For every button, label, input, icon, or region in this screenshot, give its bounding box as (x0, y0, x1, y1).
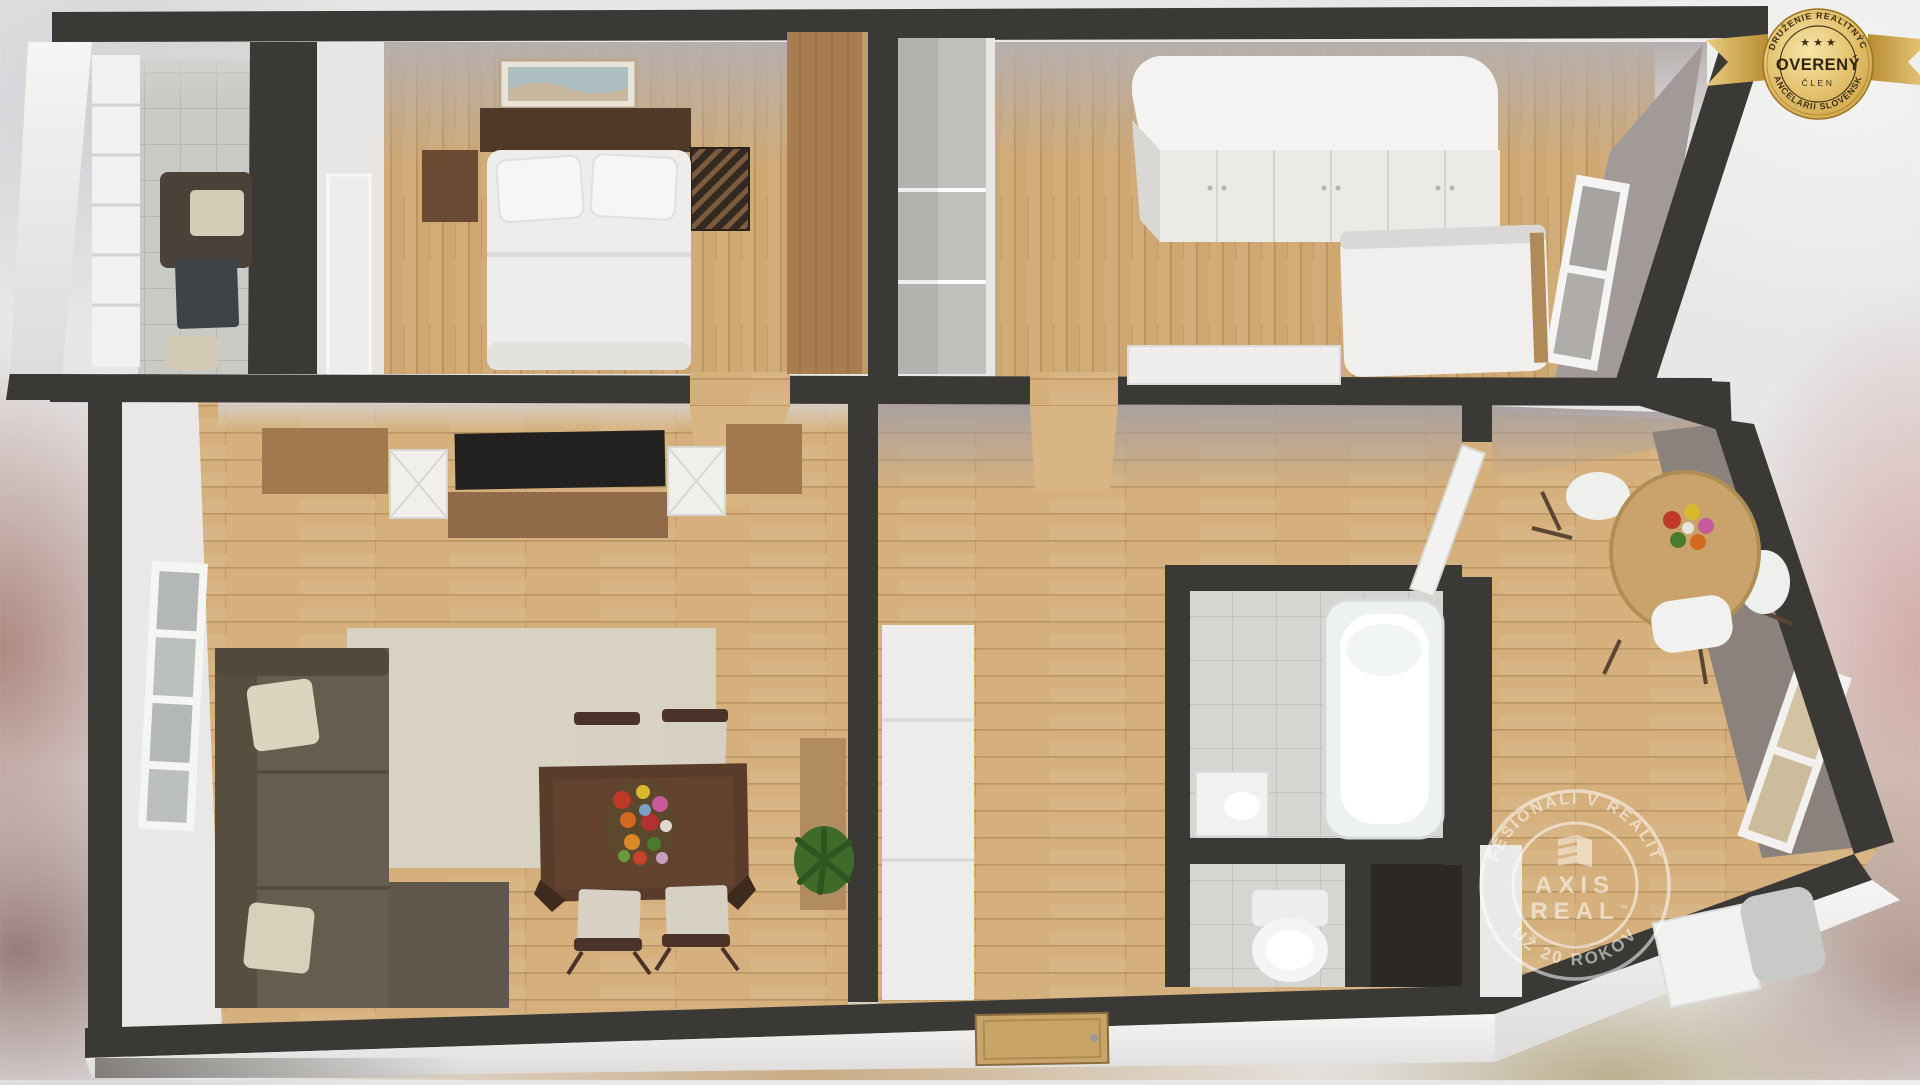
floor-plan-render: AXIS REAL ™ PROFESIONÁLI V REALITÁCH UŽ … (0, 0, 1920, 1080)
low-shelf (1128, 346, 1340, 384)
bathtub-head (1346, 624, 1422, 676)
toilet-seat (1266, 930, 1314, 970)
doorway-hallway (1030, 372, 1118, 406)
wall-stub-left (6, 372, 62, 400)
wall-kitchen-bedroom1 (248, 42, 317, 374)
kitchen-cabinets (92, 55, 140, 367)
nightstand (422, 150, 478, 222)
bedside-shelf (691, 148, 749, 230)
kitchen-stool (166, 336, 218, 370)
pillow-left (496, 155, 584, 223)
sofa-chaise (389, 882, 509, 1008)
chair (574, 712, 640, 773)
storage-nook-floor (1369, 862, 1462, 987)
kitchen-armchair-cushion (190, 190, 244, 236)
watermark-brand-real: REAL (1530, 898, 1619, 925)
sideboard-center (448, 492, 668, 538)
kitchen-table (175, 257, 239, 329)
wall-bathroom-right (1443, 565, 1467, 865)
potted-plant (794, 826, 854, 894)
sofa-pillow-top (246, 678, 321, 753)
sofa-arm-top (215, 648, 389, 676)
wardrobe-wood (787, 32, 868, 374)
exterior-left-top (10, 42, 92, 374)
toilet-room (1252, 890, 1328, 982)
gray-cabinet-edge (986, 38, 995, 374)
floor-plan-svg: AXIS REAL ™ PROFESIONÁLI V REALITÁCH UŽ … (0, 0, 1920, 1080)
watermark-trademark: ™ (1619, 903, 1628, 913)
badge-ribbon-left (1706, 34, 1768, 86)
chair (662, 709, 728, 769)
sideboard-right (726, 424, 802, 494)
badge-title: OVERENÝ (1776, 55, 1860, 74)
sideboard-left (262, 428, 388, 494)
sink (1224, 792, 1260, 820)
hallway-top-wall-face (878, 404, 1462, 492)
bed-headboard (480, 108, 691, 152)
wall-top (52, 6, 1768, 42)
doorway-bedroom1-living (690, 372, 790, 406)
flower-centerpiece (604, 780, 676, 868)
wall-bathroom-left (1165, 565, 1190, 987)
wall-living-left (88, 398, 122, 1048)
single-bed (1340, 224, 1551, 377)
wardrobe-edge (862, 32, 868, 374)
hall-cabinet (882, 625, 974, 1000)
sofa-pillow-bottom (243, 902, 316, 975)
gray-cabinet-shade (898, 38, 938, 374)
wall-bedroom1-closet (868, 38, 898, 376)
wall-bathroom-toilet (1165, 838, 1443, 864)
badge-subtitle: ČLEN (1802, 78, 1835, 88)
pillow-right (590, 154, 677, 220)
bottom-shadow (95, 1058, 465, 1078)
axis-real-building-icon (1558, 835, 1592, 867)
bedroom1-window (328, 175, 370, 375)
bed-foot (487, 342, 691, 370)
badge-stars: ★ ★ ★ (1800, 37, 1836, 49)
wall-toilet-nook (1345, 862, 1371, 987)
badge-ribbon-right (1868, 34, 1920, 86)
entrance-door (976, 1013, 1109, 1065)
tv-panel (455, 430, 666, 490)
watermark-brand-axis: AXIS (1535, 872, 1615, 899)
wall-picture (500, 60, 636, 108)
doorway-threshold-hallway (1030, 406, 1118, 490)
duvet-fold (487, 252, 691, 257)
wall-living-hallway (848, 398, 878, 1002)
entry-closet (898, 38, 995, 374)
